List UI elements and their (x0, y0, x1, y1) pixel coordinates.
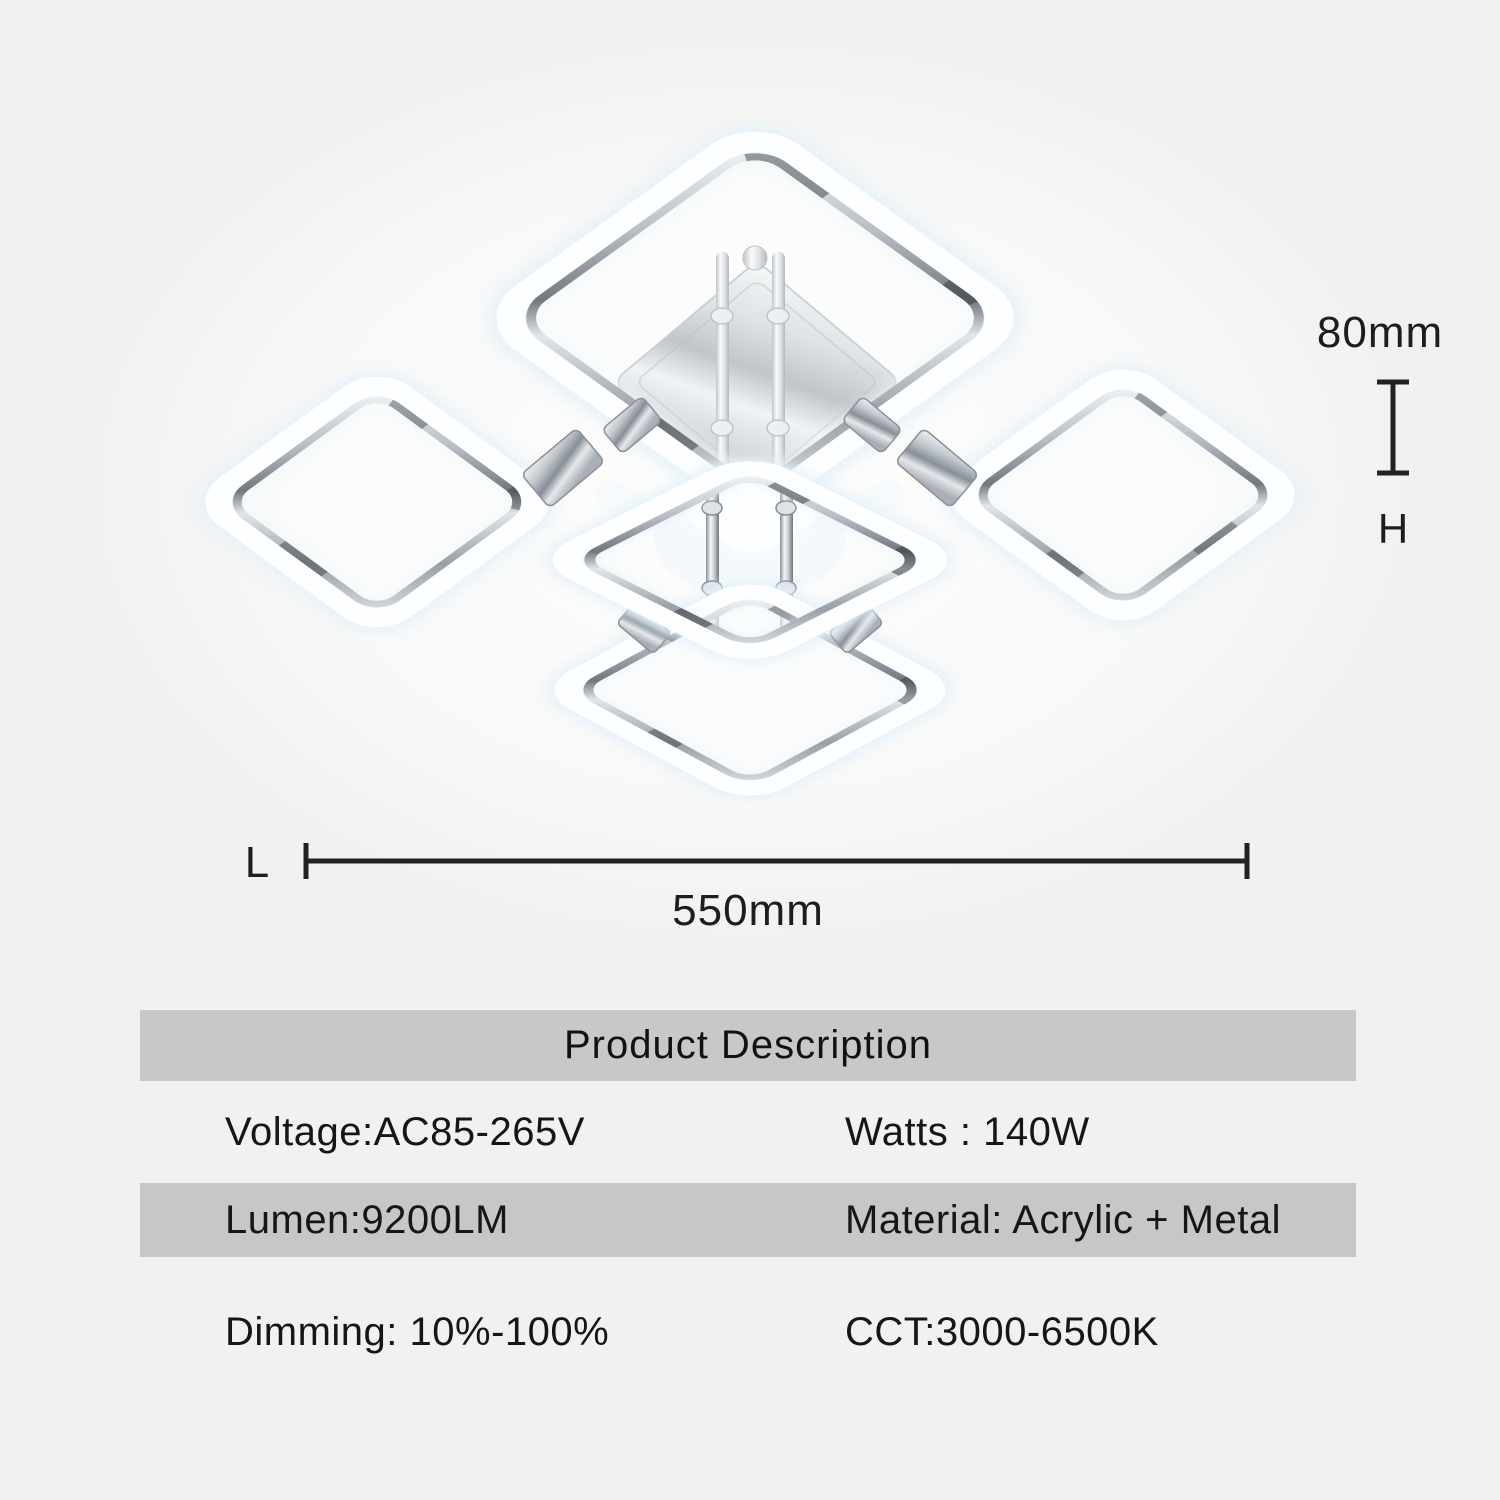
spec-dimming: Dimming: 10%-100% (140, 1310, 845, 1355)
product-description-table: Product Description Voltage:AC85-265V Wa… (140, 1010, 1356, 1407)
spec-row-dimming-cct: Dimming: 10%-100% CCT:3000-6500K (140, 1257, 1356, 1407)
spec-cct: CCT:3000-6500K (845, 1310, 1356, 1355)
table-header: Product Description (140, 1010, 1356, 1081)
spec-row-voltage-watts: Voltage:AC85-265V Watts : 140W (140, 1081, 1356, 1183)
length-axis-label: L (245, 838, 269, 887)
spec-watts: Watts : 140W (845, 1110, 1356, 1155)
table-title: Product Description (564, 1023, 932, 1068)
spec-material: Material: Acrylic + Metal (845, 1198, 1356, 1243)
spec-voltage: Voltage:AC85-265V (140, 1110, 845, 1155)
spec-row-lumen-material: Lumen:9200LM Material: Acrylic + Metal (140, 1183, 1356, 1257)
length-value-label: 550mm (672, 886, 824, 935)
spec-lumen: Lumen:9200LM (140, 1198, 845, 1243)
height-axis-label: H (1378, 505, 1408, 552)
height-value-label: 80mm (1317, 308, 1443, 357)
product-sheet: 80mm H L 550mm Product Description Volta… (0, 0, 1500, 1500)
